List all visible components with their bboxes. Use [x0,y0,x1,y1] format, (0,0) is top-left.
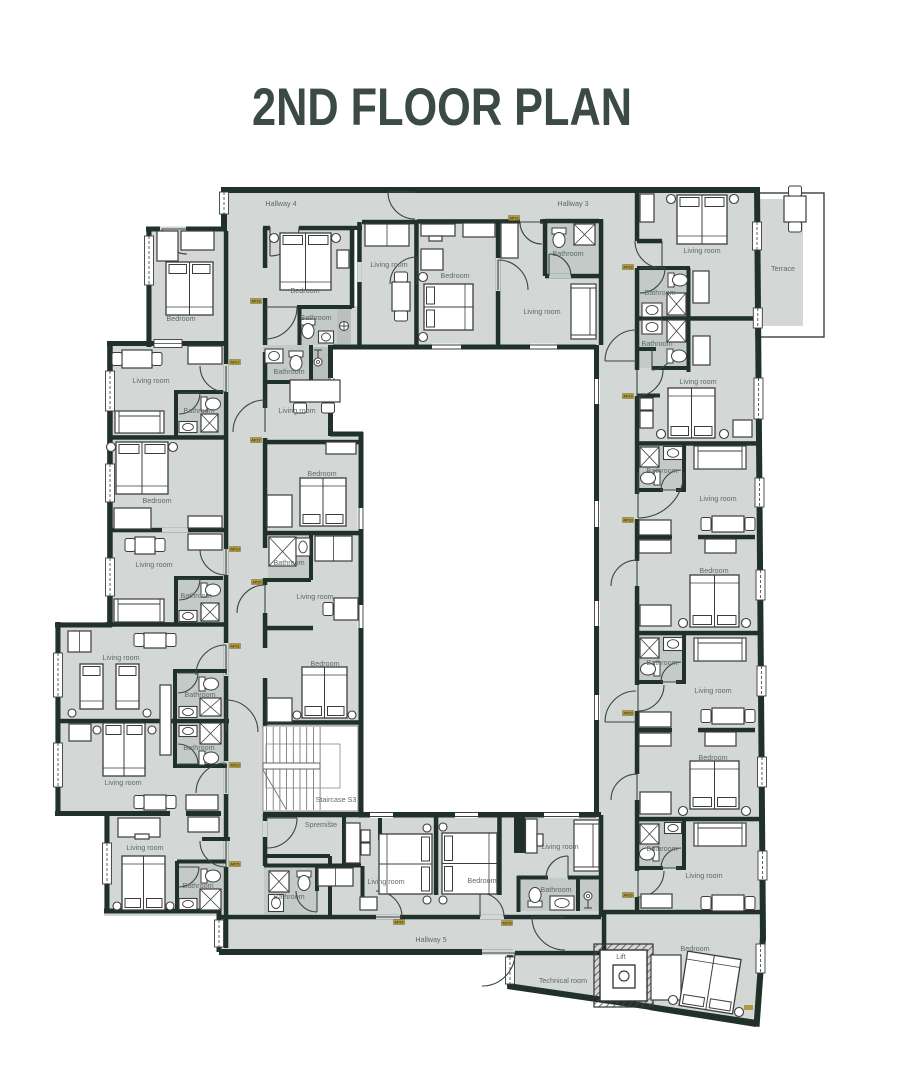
svg-text:Lift: Lift [616,952,626,961]
svg-text:Bathroom: Bathroom [182,881,213,890]
svg-text:Living room: Living room [523,307,560,316]
svg-text:AP24: AP24 [394,921,403,925]
svg-text:Bathroom: Bathroom [300,313,331,322]
svg-text:AP20: AP20 [252,581,261,585]
svg-text:Hallway 4: Hallway 4 [265,199,296,208]
svg-text:AP25: AP25 [502,922,511,926]
svg-text:AP18: AP18 [623,266,632,270]
svg-text:Terrace: Terrace [771,264,795,273]
svg-text:Hallway 3: Hallway 3 [557,199,588,208]
svg-text:AP21: AP21 [230,645,239,649]
svg-text:AP17: AP17 [230,361,239,365]
svg-text:Living room: Living room [126,843,163,852]
svg-text:Living room: Living room [102,653,139,662]
svg-text:Bathroom: Bathroom [273,558,304,567]
svg-text:Living room: Living room [683,246,720,255]
svg-text:Living room: Living room [132,376,169,385]
svg-text:AP19: AP19 [623,395,632,399]
svg-text:Technical room: Technical room [539,976,587,985]
svg-text:Bedroom: Bedroom [290,286,319,295]
svg-text:Living room: Living room [135,560,172,569]
svg-text:Bedroom: Bedroom [680,944,709,953]
svg-text:AP23: AP23 [230,764,239,768]
svg-text:Bathroom: Bathroom [552,249,583,258]
svg-text:Bedroom: Bedroom [166,314,195,323]
svg-text:Bedroom: Bedroom [142,496,171,505]
svg-text:Living room: Living room [104,778,141,787]
svg-text:Bedroom: Bedroom [307,469,336,478]
svg-text:Staircase S3: Staircase S3 [316,795,357,804]
svg-text:AP16: AP16 [509,217,518,221]
svg-text:AP26: AP26 [623,894,632,898]
svg-text:Bathroom: Bathroom [644,288,675,297]
svg-text:Bathroom: Bathroom [273,367,304,376]
svg-text:Bathroom: Bathroom [646,658,677,667]
svg-text:Bedroom: Bedroom [467,876,496,885]
svg-text:Living room: Living room [694,686,731,695]
svg-text:AP19: AP19 [623,519,632,523]
svg-text:Bathroom: Bathroom [646,466,677,475]
svg-text:Living room: Living room [699,494,736,503]
svg-text:AP20: AP20 [623,712,632,716]
svg-text:Living room: Living room [367,877,404,886]
svg-text:Hallway 5: Hallway 5 [415,935,446,944]
svg-text:Bathroom: Bathroom [183,406,214,415]
svg-text:Living room: Living room [541,842,578,851]
svg-text:Living room: Living room [679,377,716,386]
svg-text:Living room: Living room [370,260,407,269]
svg-text:Bathroom: Bathroom [646,844,677,853]
svg-text:AP19: AP19 [230,548,239,552]
svg-text:Living room: Living room [685,871,722,880]
svg-text:Bathroom: Bathroom [184,690,215,699]
svg-text:Bathroom: Bathroom [183,743,214,752]
svg-text:2ND FLOOR PLAN: 2ND FLOOR PLAN [252,78,632,137]
svg-text:Bathroom: Bathroom [540,885,571,894]
svg-text:Spremište: Spremište [305,820,337,829]
svg-text:AP17: AP17 [251,439,260,443]
svg-text:Bedroom: Bedroom [310,659,339,668]
svg-text:AP16: AP16 [251,300,260,304]
svg-text:Living room: Living room [296,592,333,601]
svg-text:Bathroom: Bathroom [273,892,304,901]
svg-text:Bedroom: Bedroom [698,753,727,762]
svg-text:Bedroom: Bedroom [699,566,728,575]
svg-text:Bathroom: Bathroom [641,339,672,348]
svg-text:Bathroom: Bathroom [180,591,211,600]
svg-text:Bedroom: Bedroom [440,271,469,280]
svg-text:Living room: Living room [278,406,315,415]
svg-text:AP25: AP25 [230,863,239,867]
